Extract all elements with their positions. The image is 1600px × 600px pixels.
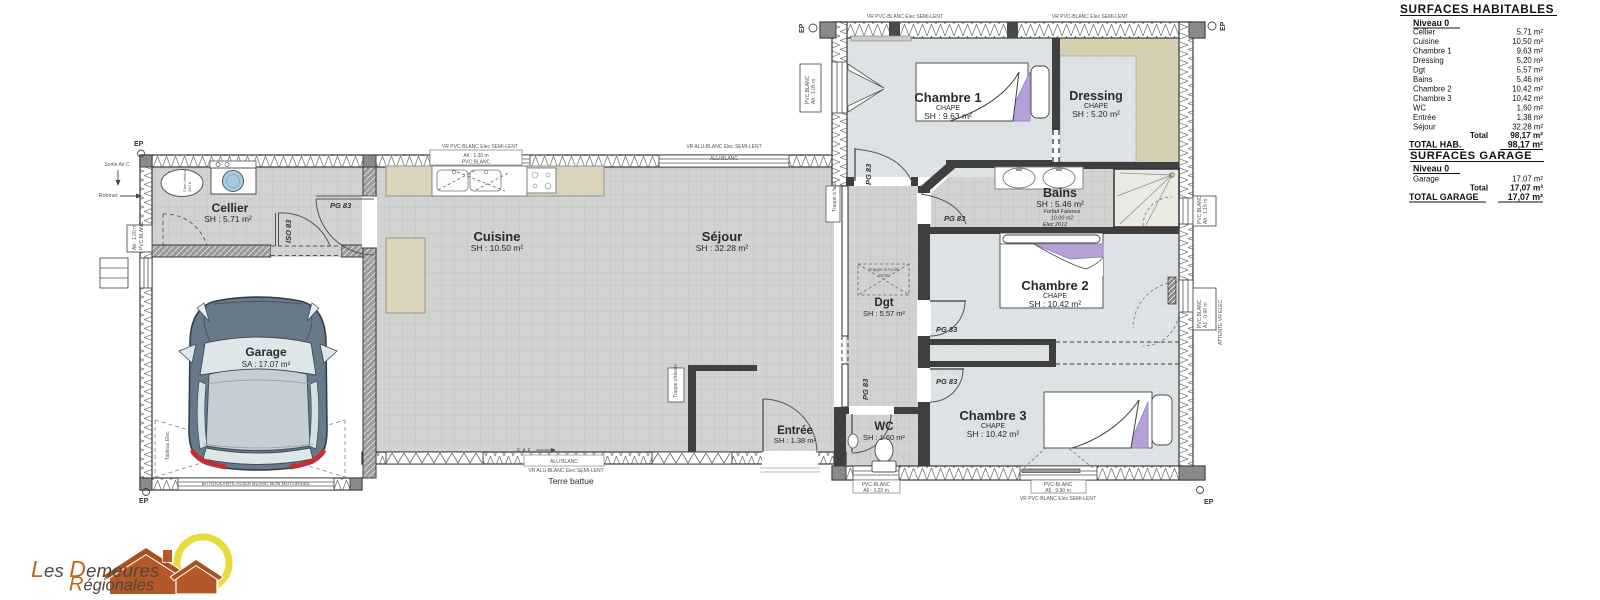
svg-text:SH : 1.60 m²: SH : 1.60 m² [863, 433, 906, 442]
svg-text:ISO 83: ISO 83 [284, 219, 293, 243]
svg-text:Entrée: Entrée [1413, 113, 1436, 122]
svg-text:Trappe à faux: Trappe à faux [832, 181, 838, 212]
svg-text:PG 83: PG 83 [864, 163, 873, 185]
svg-text:1,60 m²: 1,60 m² [1517, 104, 1544, 113]
svg-text:Niveau 0: Niveau 0 [1413, 18, 1449, 28]
svg-text:PG 83: PG 83 [944, 214, 966, 223]
svg-text:EP: EP [139, 498, 149, 505]
svg-text:Terre battue: Terre battue [548, 476, 594, 486]
svg-text:Total: Total [1470, 131, 1488, 140]
svg-text:VR ALU-BLANC Elec SEMI-LENT: VR ALU-BLANC Elec SEMI-LENT [528, 468, 603, 474]
svg-text:WC: WC [1413, 104, 1426, 113]
svg-text:5,20 m²: 5,20 m² [1517, 56, 1544, 65]
svg-text:5,46 m²: 5,46 m² [1517, 75, 1544, 84]
svg-text:PG 83: PG 83 [330, 201, 352, 210]
svg-text:60/60: 60/60 [878, 273, 890, 278]
svg-text:Alt : 1.20 m: Alt : 1.20 m [132, 225, 138, 250]
svg-text:Alt : 1.15 m: Alt : 1.15 m [1203, 199, 1209, 224]
svg-text:VR PVC-BLANC Elec SEMI-LENT: VR PVC-BLANC Elec SEMI-LENT [867, 14, 943, 20]
svg-text:Bains: Bains [1043, 186, 1077, 200]
svg-text:Chambre 2: Chambre 2 [1413, 85, 1452, 94]
svg-text:SH : 9.63 m²: SH : 9.63 m² [924, 111, 972, 121]
svg-text:Trappe châssis: Trappe châssis [673, 364, 679, 398]
svg-text:E.A.F: E.A.F [517, 448, 531, 454]
svg-text:Niveau 0: Niveau 0 [1413, 164, 1449, 174]
svg-text:17,07 m²: 17,07 m² [1512, 175, 1543, 184]
svg-text:SH : 5.57 m²: SH : 5.57 m² [863, 309, 906, 318]
svg-text:250 lt: 250 lt [187, 181, 192, 192]
svg-text:ALU:BLANC: ALU:BLANC [550, 459, 578, 465]
svg-text:Séjour: Séjour [1413, 123, 1436, 132]
svg-text:Cellier: Cellier [212, 201, 249, 215]
svg-text:Cellier: Cellier [1413, 28, 1435, 37]
svg-text:VR ALU-BLANC Elec SEMI-LENT: VR ALU-BLANC Elec SEMI-LENT [686, 144, 761, 150]
svg-text:A5 : 0.90 m: A5 : 0.90 m [1045, 488, 1071, 494]
svg-text:Dressing: Dressing [1413, 56, 1444, 65]
svg-text:10,50 m²: 10,50 m² [1512, 37, 1543, 46]
svg-text:Chambre 3: Chambre 3 [959, 408, 1026, 423]
svg-text:Séjour: Séjour [702, 229, 742, 244]
svg-text:VR PVC-BLANC Elec SEMI-LENT: VR PVC-BLANC Elec SEMI-LENT [1020, 496, 1096, 502]
svg-text:9,63 m²: 9,63 m² [1517, 47, 1544, 56]
svg-text:ATTENTE VR ELEC: ATTENTE VR ELEC [1218, 299, 1224, 345]
svg-text:5,71 m²: 5,71 m² [1517, 28, 1544, 37]
svg-text:SH : 32.28 m²: SH : 32.28 m² [696, 243, 749, 253]
svg-text:Elec 2012: Elec 2012 [1043, 222, 1067, 228]
svg-text:Dgt: Dgt [1413, 66, 1426, 75]
svg-text:Cuisine: Cuisine [474, 229, 521, 244]
svg-text:10,42 m²: 10,42 m² [1512, 94, 1543, 103]
svg-text:EP: EP [134, 141, 144, 148]
svg-text:10.00 m2: 10.00 m2 [1051, 216, 1074, 222]
svg-text:VR PVC-BLANC Elec SEMI-LENT: VR PVC-BLANC Elec SEMI-LENT [1052, 14, 1128, 20]
svg-text:WC: WC [874, 421, 893, 433]
svg-text:SA : 17.07 m²: SA : 17.07 m² [242, 360, 291, 369]
svg-text:PVC:BLANC: PVC:BLANC [139, 221, 145, 250]
svg-text:10,42 m²: 10,42 m² [1512, 85, 1543, 94]
svg-text:Chambre 3: Chambre 3 [1413, 94, 1452, 103]
svg-text:Chambre 2: Chambre 2 [1021, 278, 1088, 293]
svg-text:SURFACES GARAGE: SURFACES GARAGE [1410, 150, 1532, 162]
svg-text:SH : 10.42 m²: SH : 10.42 m² [1029, 299, 1082, 309]
svg-text:Dgt: Dgt [874, 297, 893, 309]
svg-text:PG 83: PG 83 [936, 377, 958, 386]
svg-text:Alt : 1.30 m: Alt : 1.30 m [463, 153, 488, 159]
svg-text:Forfait Faïence: Forfait Faïence [1044, 209, 1081, 215]
svg-text:Garage: Garage [1413, 175, 1439, 184]
svg-text:17,07 m²: 17,07 m² [1508, 192, 1543, 202]
svg-text:Trappe d'Accès: Trappe d'Accès [869, 267, 901, 272]
svg-text:PG 83: PG 83 [936, 325, 958, 334]
svg-text:Dressing: Dressing [1069, 89, 1123, 103]
svg-text:A1 : 0.90 m: A1 : 0.90 m [1203, 302, 1209, 328]
svg-text:EP: EP [1204, 499, 1214, 506]
svg-text:Bains: Bains [1413, 75, 1433, 84]
svg-text:ALU:BLANC: ALU:BLANC [710, 156, 738, 162]
svg-text:Chambre 1: Chambre 1 [914, 90, 981, 105]
svg-text:Régionales: Régionales [69, 574, 154, 596]
svg-text:VR PVC-BLANC Elec SEMI-LENT: VR PVC-BLANC Elec SEMI-LENT [442, 144, 518, 150]
svg-text:SURFACES HABITABLES: SURFACES HABITABLES [1400, 2, 1554, 16]
svg-text:Tableau Elec: Tableau Elec [165, 431, 171, 460]
svg-text:BA ROULANTE ACIER BLANC NON MO: BA ROULANTE ACIER BLANC NON MOTORISEE [202, 481, 311, 487]
svg-text:Garage: Garage [245, 345, 287, 359]
svg-text:PVC:BLANC: PVC:BLANC [462, 160, 491, 166]
svg-text:1,38 m²: 1,38 m² [1517, 113, 1544, 122]
svg-text:Alt : 1.05 m: Alt : 1.05 m [811, 79, 817, 104]
svg-text:SH : 5.20 m²: SH : 5.20 m² [1072, 109, 1120, 119]
svg-text:SH : 5.46 m²: SH : 5.46 m² [1036, 199, 1084, 209]
svg-text:EP: EP [1220, 21, 1227, 31]
svg-text:EP: EP [799, 23, 806, 33]
svg-text:TOTAL GARAGE: TOTAL GARAGE [1409, 192, 1479, 202]
svg-text:A5 : 1.20 m: A5 : 1.20 m [863, 488, 889, 494]
svg-text:PG 83: PG 83 [861, 378, 870, 400]
svg-text:SH : 10.42 m²: SH : 10.42 m² [967, 429, 1020, 439]
svg-text:Sortie Air C: Sortie Air C [104, 162, 130, 168]
svg-text:SH : 5.71 m²: SH : 5.71 m² [204, 214, 252, 224]
svg-text:5,57 m²: 5,57 m² [1517, 66, 1544, 75]
svg-text:SH : 1.38 m²: SH : 1.38 m² [774, 436, 817, 445]
svg-text:98,17 m²: 98,17 m² [1508, 140, 1543, 150]
svg-text:Chambre 1: Chambre 1 [1413, 47, 1452, 56]
svg-text:Cuisine: Cuisine [1413, 37, 1439, 46]
svg-text:Robinet: Robinet [99, 193, 118, 199]
svg-text:SH : 10.50 m²: SH : 10.50 m² [471, 243, 524, 253]
svg-text:TOTAL HAB.: TOTAL HAB. [1409, 140, 1461, 150]
